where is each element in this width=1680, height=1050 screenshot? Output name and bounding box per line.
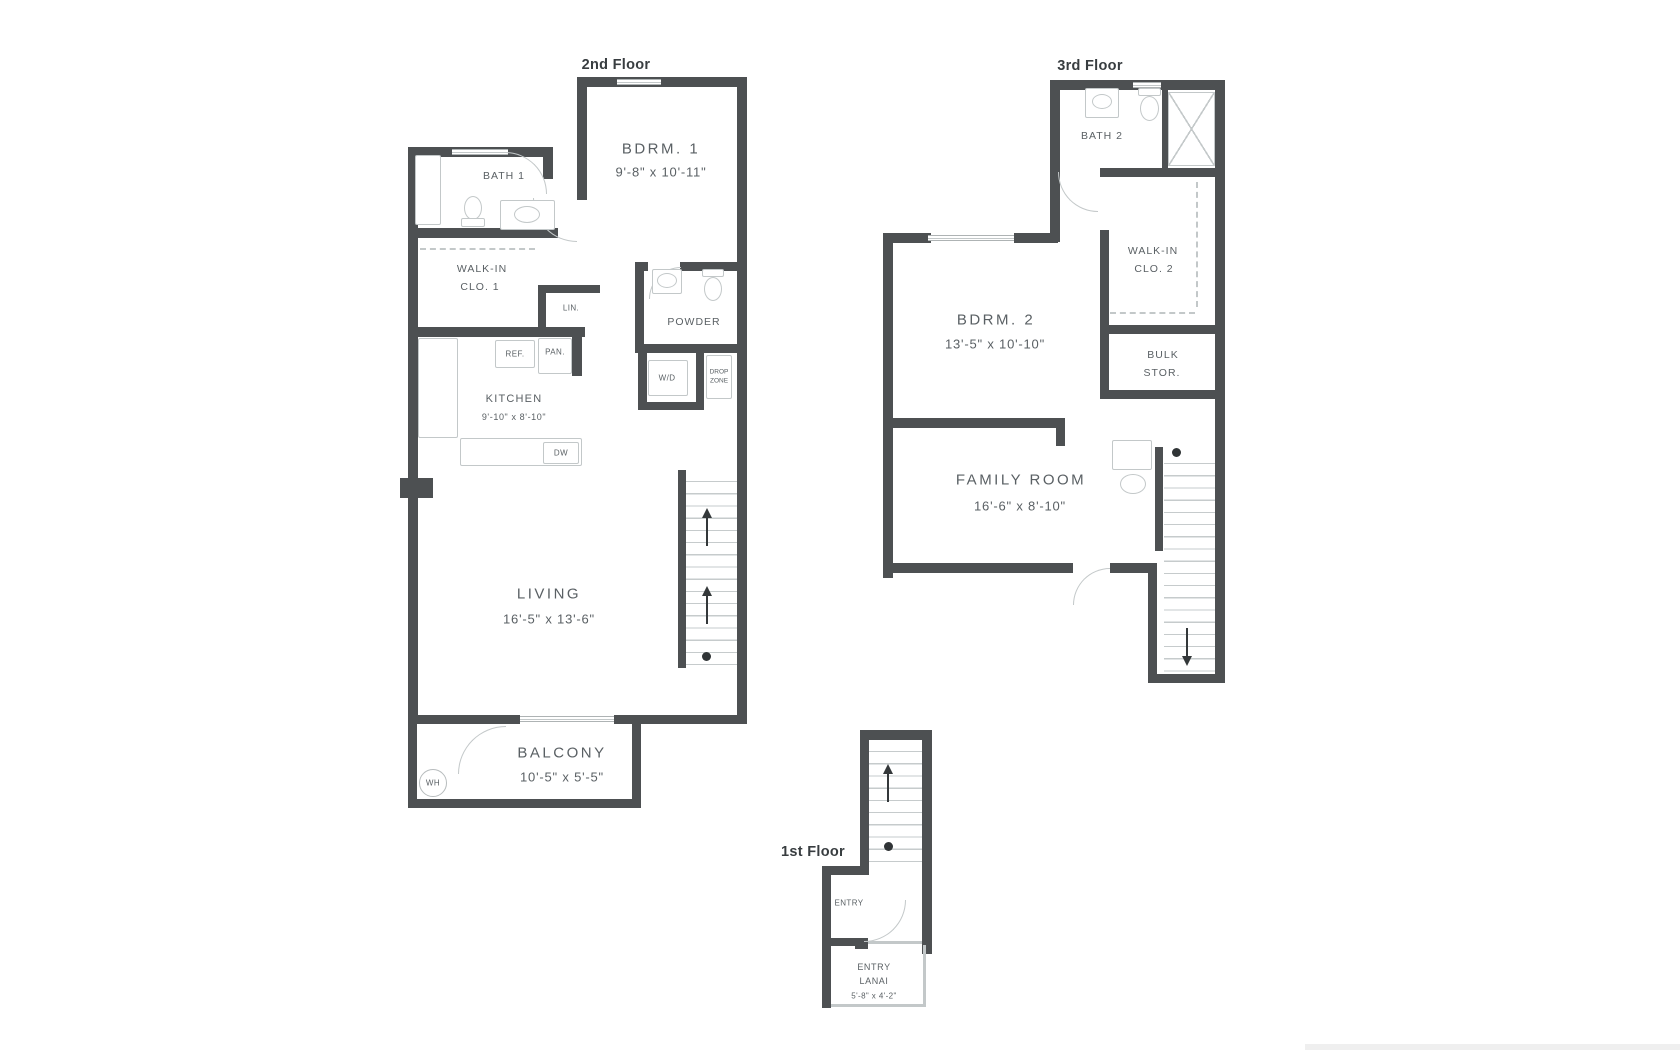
door-arc [864,900,906,942]
window [520,716,614,722]
wall [400,478,433,498]
room-dims-bdrm2: 13'-5" x 10'-10" [945,337,1045,352]
room-dims-living: 16'-5" x 13'-6" [503,612,595,627]
stair-newel-dot [884,842,893,851]
floor-plan-page: 2nd Floor BDRM. 1 9'-8" x 10'-11" BATH 1… [0,0,1680,1050]
room-label-bath2: BATH 2 [1081,130,1123,142]
wall [678,470,686,668]
room-label-bulk-stor-line2: STOR. [1144,367,1181,379]
window [928,235,1016,241]
wall [408,715,520,724]
room-label-lanai-line2: LANAI [859,976,888,986]
room-label-powder: POWDER [667,316,720,328]
room-label-lanai-line1: ENTRY [857,962,890,972]
wall [822,866,831,1008]
wall [860,730,869,872]
wall [1050,80,1060,242]
fixture-ellipse [464,196,482,220]
room-label-bath1: BATH 1 [483,170,525,182]
room-label-walkin1-line2: CLO. 1 [460,281,499,293]
floor-title-2nd: 2nd Floor [582,57,651,73]
wall [922,730,932,954]
wall [572,328,582,376]
shower-x-box [1168,92,1215,166]
fixture-label-pantry: PAN. [545,348,565,357]
wall [831,938,857,946]
wall [632,724,641,808]
fixture-label-dishwasher: DW [554,449,568,458]
stair-treads [686,470,737,668]
room-dims-lanai: 5'-8" x 4'-2" [851,992,897,1001]
wall [883,233,893,578]
fixture-label-water-heater: WH [426,779,440,788]
wall [408,715,417,808]
room-label-bdrm2: BDRM. 2 [957,312,1035,329]
room-dims-bdrm1: 9'-8" x 10'-11" [616,165,707,180]
floor-title-3rd: 3rd Floor [1057,58,1123,74]
closet-rod-dashed [1196,182,1198,307]
light-wall-line [831,1004,926,1007]
stair-arrow-down-icon [1186,628,1188,662]
door-arc [458,726,506,774]
closet-label-linen: LIN. [563,304,579,313]
room-label-walkin2-line1: WALK-IN [1128,245,1178,257]
door-arc [1073,568,1110,605]
light-wall-line [868,941,922,944]
floor-title-1st: 1st Floor [781,844,845,860]
stair-arrow-up-icon [887,768,889,802]
wall [638,402,704,410]
fixture-ellipse [657,273,677,288]
wall [1148,563,1157,683]
fixture-outline [415,155,441,225]
stair-treads [869,740,922,866]
fixture-outline [702,269,724,277]
stair-arrow-up-icon [706,590,708,624]
wall [1100,325,1225,334]
wall [1148,674,1225,683]
wall [883,563,1073,573]
label-drop-zone-line1: DROP [710,369,729,376]
wall [1014,233,1058,243]
room-label-balcony: BALCONY [517,745,606,762]
room-label-walkin2-line2: CLO. 2 [1134,263,1173,275]
wall [538,285,600,293]
wall [408,799,641,808]
room-label-kitchen: KITCHEN [486,393,543,405]
closet-rod-dashed [1110,312,1195,314]
room-label-living: LIVING [517,586,581,603]
room-dims-balcony: 10'-5" x 5'-5" [520,770,604,785]
wall [577,77,587,200]
wall [1100,390,1225,399]
fixture-ellipse [1140,96,1159,121]
light-wall-line [923,945,926,1007]
wall [577,77,747,87]
wall [1100,168,1225,177]
fixture-outline [418,338,458,438]
wall [1155,447,1163,551]
ui-bar [1305,1044,1680,1050]
window [617,79,661,85]
wall [635,262,644,353]
room-dims-kitchen: 9'-10" x 8'-10" [482,412,546,422]
stair-treads [1164,452,1215,677]
wall [1056,418,1065,446]
fixture-label-refrigerator: REF. [506,350,525,359]
room-label-bdrm1: BDRM. 1 [622,141,700,158]
closet-rod-dashed [420,248,535,250]
fixture-label-washer-dryer: W/D [659,374,676,383]
fixture-outline [1138,88,1161,96]
room-label-family: FAMILY ROOM [956,472,1086,489]
wall [883,418,1065,428]
fixture-outline [461,218,485,227]
fixture-ellipse [1092,94,1112,109]
wall [737,77,747,724]
wall [696,353,704,410]
room-label-entry: ENTRY [835,899,864,908]
room-label-walkin1-line1: WALK-IN [457,263,507,275]
wall [538,285,546,337]
stair-newel-dot [1172,448,1181,457]
wall [1100,230,1109,399]
wall [635,344,747,353]
room-dims-family: 16'-6" x 8'-10" [974,499,1066,514]
fixture-outline [1112,440,1152,470]
label-drop-zone-line2: ZONE [710,378,728,385]
fixture-ellipse [1120,474,1146,494]
fixture-ellipse [514,206,540,223]
wall [408,327,585,337]
stair-arrow-up-icon [706,512,708,546]
window [452,149,508,155]
stair-newel-dot [702,652,711,661]
wall [614,715,747,724]
wall [543,147,553,179]
door-arc [1058,172,1098,212]
fixture-ellipse [704,277,722,301]
room-label-bulk-stor-line1: BULK [1147,349,1178,361]
